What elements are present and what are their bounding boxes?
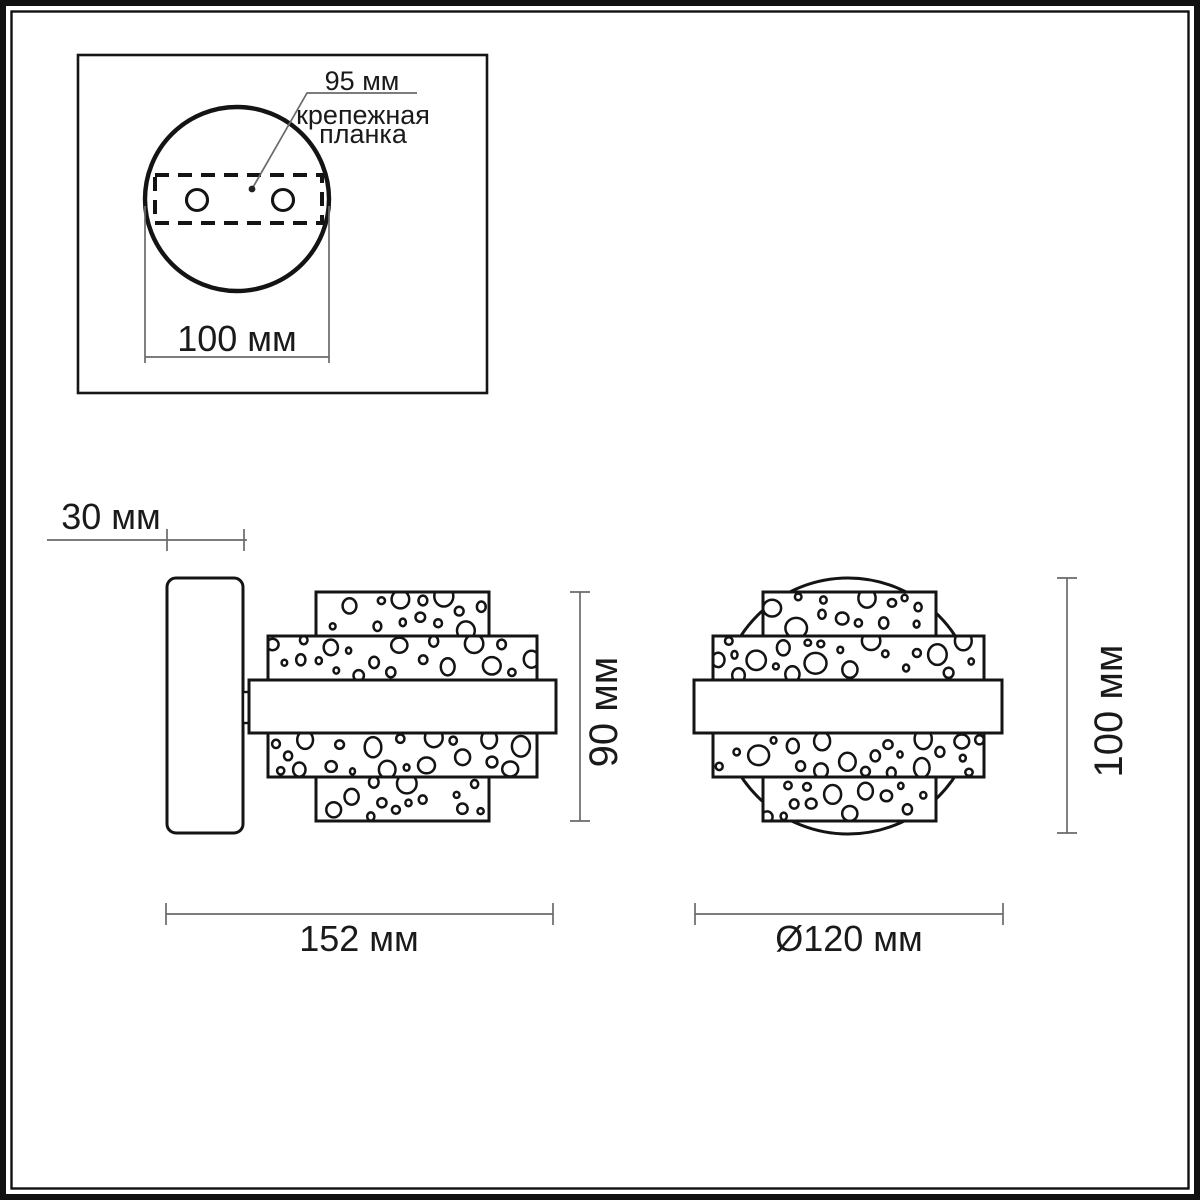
bubble-dot: [293, 763, 305, 777]
bubble-dot: [902, 595, 908, 602]
bubble-dot: [441, 658, 455, 675]
bubble-dot: [795, 594, 802, 601]
bubble-dot: [419, 795, 427, 803]
bubble-dot: [944, 668, 954, 678]
bubble-dot: [326, 802, 341, 817]
bubble-dot: [818, 610, 825, 619]
bubble-dot: [716, 763, 723, 770]
bubble-dot: [343, 598, 357, 613]
bubble-dot: [502, 762, 518, 777]
bubble-dot: [871, 750, 880, 761]
bubble-dot: [455, 750, 470, 766]
bubble-dot: [386, 667, 395, 677]
bubble-dot: [454, 792, 460, 798]
bubble-dot: [790, 799, 799, 808]
bubble-dot: [861, 767, 870, 776]
side-center-band: [249, 680, 556, 733]
mounting-detail-inset: 95 мм крепежная планка 100 мм: [78, 55, 487, 393]
bubble-dot: [897, 751, 902, 757]
depth-dim-label: 30 мм: [61, 496, 161, 537]
bubble-dot: [508, 669, 515, 676]
bubble-dot: [928, 644, 947, 665]
screw-hole-right: [273, 190, 294, 211]
lamp-spec-sheet: 95 мм крепежная планка 100 мм 30 мм: [0, 0, 1200, 1200]
bubble-dot: [836, 613, 849, 625]
base-width-label: 100 мм: [177, 318, 297, 359]
bubble-dot: [374, 622, 382, 631]
bubble-dot: [820, 596, 827, 603]
bubble-dot: [747, 651, 766, 670]
bubble-dot: [497, 640, 506, 650]
bubble-dot: [914, 758, 930, 778]
bubble-dot: [969, 658, 974, 664]
bracket-spacing-label: 95 мм: [325, 66, 400, 96]
bubble-dot: [842, 661, 857, 677]
bubble-dot: [748, 746, 769, 766]
bubble-dot: [346, 648, 351, 654]
bubble-dot: [837, 647, 843, 653]
bubble-dot: [316, 657, 322, 664]
bubble-dot: [806, 799, 817, 809]
bubble-dot: [434, 619, 442, 627]
bubble-dot: [824, 785, 841, 804]
bubble-dot: [803, 783, 811, 791]
bubble-dot: [404, 764, 410, 771]
bubble-dot: [478, 808, 484, 814]
bubble-dot: [903, 804, 912, 814]
bubble-dot: [471, 780, 478, 788]
bubble-dot: [777, 640, 790, 655]
bubble-dot: [455, 607, 464, 616]
bubble-dot: [954, 735, 969, 749]
bubble-dot: [377, 798, 386, 807]
mounting-base-circle: [145, 107, 329, 291]
bubble-dot: [330, 623, 336, 629]
bubble-dot: [781, 813, 787, 820]
bubble-dot: [282, 660, 288, 666]
bubble-dot: [913, 649, 921, 657]
bubble-dot: [858, 783, 873, 800]
bracket-name-line2: планка: [319, 119, 408, 149]
bubble-dot: [512, 736, 530, 757]
bubble-dot: [487, 757, 498, 768]
bubble-dot: [326, 761, 337, 772]
bubble-dot: [350, 768, 355, 774]
bubble-dot: [477, 602, 486, 612]
bubble-dot: [334, 667, 340, 673]
bubble-dot: [734, 749, 740, 756]
bubble-dot: [960, 755, 966, 762]
bubble-dot: [429, 636, 438, 647]
bubble-dot: [914, 621, 920, 628]
bubble-dot: [796, 761, 805, 771]
bubble-dot: [915, 603, 922, 611]
bubble-dot: [272, 740, 280, 748]
bubble-dot: [784, 782, 791, 789]
bubble-dot: [725, 637, 733, 645]
bubble-dot: [965, 769, 972, 776]
screw-hole-left: [187, 190, 208, 211]
bubble-dot: [805, 653, 827, 674]
bubble-dot: [732, 651, 738, 659]
bubble-dot: [898, 783, 903, 789]
side-width-dim-label: 152 мм: [299, 918, 419, 959]
wall-plate-side: [167, 578, 243, 833]
bubble-dot: [416, 613, 426, 622]
lamp-dimensions-diagram: 95 мм крепежная планка 100 мм 30 мм: [0, 0, 1200, 1200]
leader-dot: [249, 186, 256, 193]
bubble-dot: [335, 740, 344, 748]
bubble-dot: [369, 657, 379, 668]
bubble-dot: [920, 792, 926, 799]
bubble-dot: [457, 804, 467, 814]
bubble-dot: [365, 737, 382, 757]
bubble-dot: [392, 806, 400, 814]
bubble-dot: [883, 740, 892, 749]
bubble-dot: [842, 806, 857, 821]
bubble-dot: [903, 665, 909, 672]
bubble-dot: [763, 600, 781, 617]
bubble-dot: [378, 597, 385, 604]
bubble-dot: [855, 619, 862, 626]
bubble-dot: [324, 640, 338, 656]
bubble-dot: [935, 747, 944, 757]
bubble-dot: [881, 791, 892, 802]
bubble-dot: [296, 654, 305, 665]
bubble-dot: [773, 663, 779, 669]
bubble-dot: [396, 735, 404, 743]
bubble-dot: [888, 599, 896, 607]
front-height-dim-label: 100 мм: [1087, 645, 1131, 778]
bubble-dot: [419, 596, 428, 606]
front-diameter-dim-label: Ø120 мм: [775, 918, 923, 959]
bubble-dot: [419, 655, 427, 664]
side-height-dim-label: 90 мм: [582, 657, 626, 768]
bubble-dot: [839, 753, 856, 771]
bubble-dot: [277, 767, 284, 774]
bubble-dot: [787, 739, 799, 753]
bubble-dot: [817, 641, 824, 648]
bubble-dot: [771, 737, 777, 744]
bubble-dot: [391, 638, 407, 653]
bubble-dot: [405, 800, 411, 807]
bubble-dot: [805, 640, 812, 646]
bubble-dot: [450, 737, 457, 745]
bubble-dot: [814, 732, 830, 750]
bubble-dot: [367, 812, 374, 820]
bubble-dot: [284, 752, 292, 761]
bubble-dot: [345, 789, 359, 805]
front-center-band: [694, 680, 1002, 733]
bubble-dot: [483, 657, 501, 674]
bubble-dot: [418, 758, 435, 774]
bubble-dot: [882, 650, 888, 657]
bubble-dot: [400, 619, 406, 627]
bubble-dot: [879, 617, 888, 628]
